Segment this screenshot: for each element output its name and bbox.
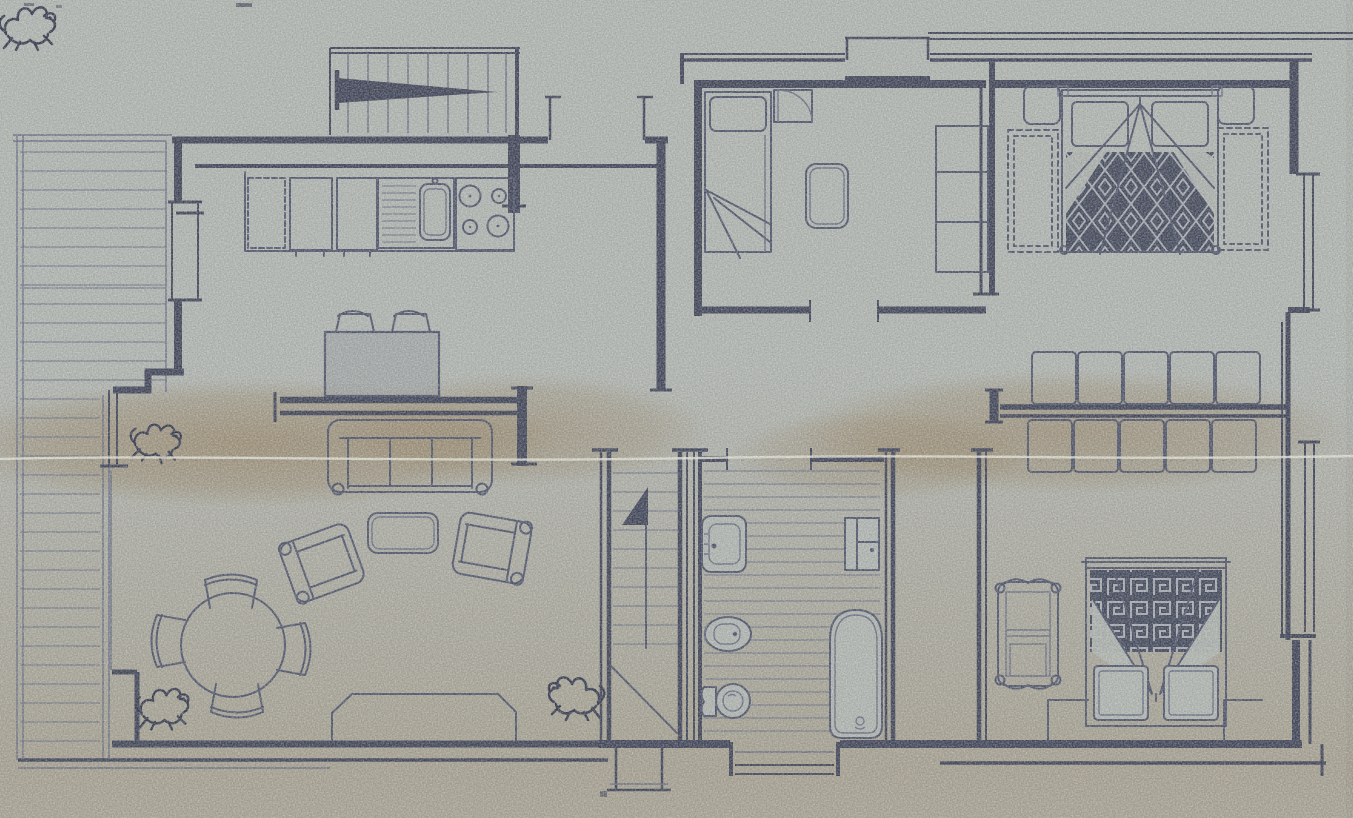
- paper-grain-light: [0, 0, 1353, 818]
- floor-plan-scan: [0, 0, 1353, 818]
